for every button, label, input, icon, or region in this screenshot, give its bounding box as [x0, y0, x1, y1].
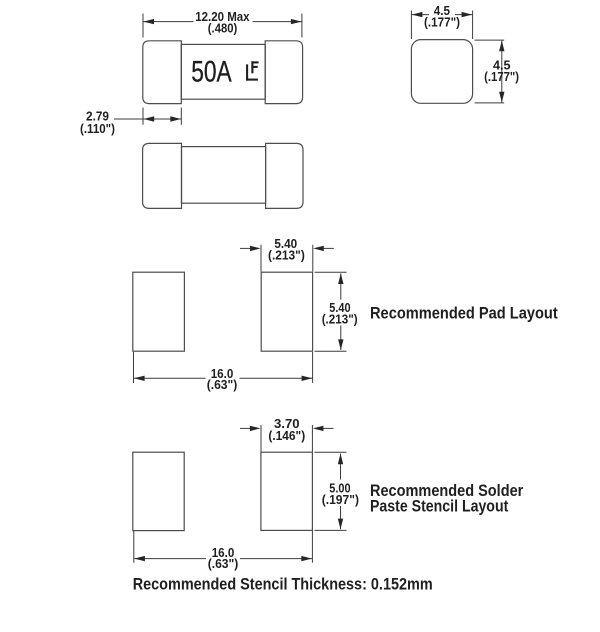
svg-text:(.146"): (.146")	[268, 429, 305, 443]
svg-text:(.63"): (.63")	[207, 378, 238, 392]
svg-text:(.480): (.480)	[208, 21, 238, 35]
svg-text:(.63"): (.63")	[208, 557, 239, 571]
svg-text:(.110"): (.110")	[80, 122, 115, 136]
svg-text:(.197"): (.197")	[322, 493, 359, 507]
svg-text:(.213"): (.213")	[322, 313, 358, 327]
svg-text:Recommended Pad Layout: Recommended Pad Layout	[370, 303, 558, 322]
svg-text:(.177"): (.177")	[484, 70, 519, 84]
svg-text:(.213"): (.213")	[268, 249, 305, 263]
svg-text:Recommended Stencil Thickness:: Recommended Stencil Thickness: 0.152mm	[133, 575, 433, 594]
svg-text:(.177"): (.177")	[424, 15, 460, 29]
svg-text:50A: 50A	[191, 56, 232, 89]
svg-text:Paste Stencil Layout: Paste Stencil Layout	[370, 497, 509, 516]
